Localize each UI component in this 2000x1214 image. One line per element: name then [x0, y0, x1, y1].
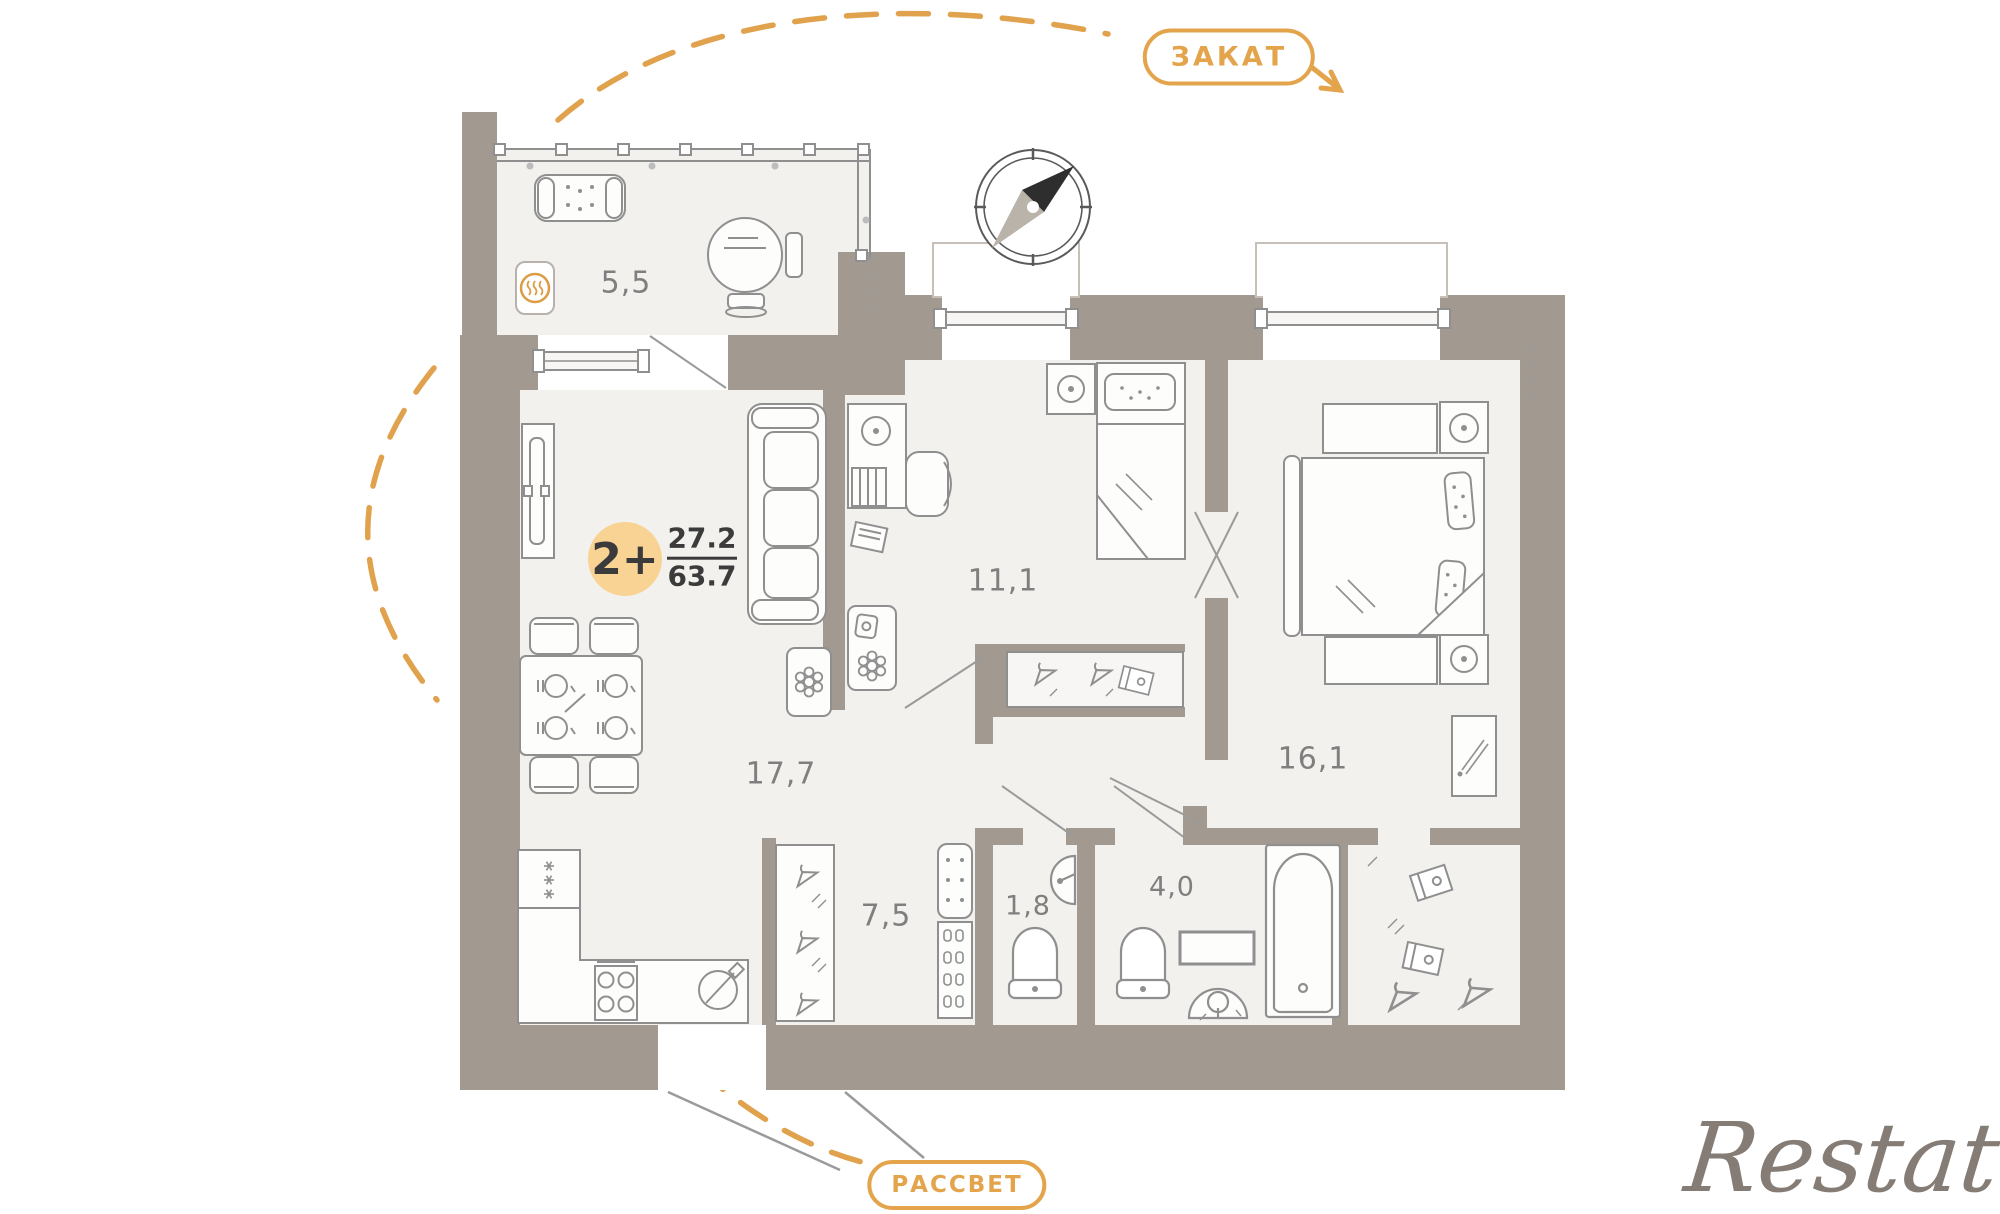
wc-top-wall-a	[993, 828, 1023, 845]
window-bedroom1	[933, 243, 1079, 360]
left-wall	[460, 335, 520, 1090]
bedroom2-area-label: 16,1	[1278, 742, 1349, 777]
bed-shelf-bottom	[1325, 635, 1488, 684]
heater-icon	[516, 262, 554, 314]
desk	[848, 404, 906, 508]
wc-bath-wall	[1077, 828, 1095, 1035]
watermark-logo: Restate	[1680, 1102, 2000, 1214]
sunrise-pill: РАССВЕТ	[867, 1160, 1046, 1210]
closet-top-wall-a	[1348, 828, 1378, 845]
bedroom1-closet-contents	[1007, 652, 1183, 707]
closet-top-wall-b	[1430, 828, 1520, 845]
hall-wc-upper-wall	[975, 644, 993, 744]
floor-plan-drawing	[0, 0, 2000, 1214]
wc-toilet	[1009, 928, 1061, 998]
living-area-value: 27.2	[667, 524, 737, 560]
hall-bench	[938, 844, 972, 918]
wc-left-wall	[975, 828, 993, 1035]
plant-stand	[787, 648, 831, 716]
bed-shelf-top	[1323, 402, 1488, 453]
balcony-door-window	[533, 335, 728, 390]
laptop	[851, 522, 887, 552]
wall-shelf	[1452, 716, 1496, 796]
partition-bedrooms-upper	[1205, 360, 1228, 512]
partition-bedrooms-lower	[1205, 598, 1228, 760]
bedroom1-nightstand	[1047, 364, 1095, 414]
bottom-wall	[460, 1025, 1565, 1090]
sunset-pill: ЗАКАТ	[1143, 29, 1315, 86]
closet-strip-top-wall	[1000, 644, 1185, 652]
bath-top-wall-b	[1185, 828, 1332, 845]
total-area-value: 63.7	[667, 560, 737, 593]
right-wall	[1520, 295, 1565, 1090]
sofa	[748, 404, 826, 624]
floor-plan-page: ЗАКАТ РАССВЕТ 2+ 27.2 63.7 5,5 17,7 11,1…	[0, 0, 2000, 1214]
shoe-rack	[938, 922, 972, 1018]
wc-area-label: 1,8	[1005, 891, 1051, 922]
closet-strip-bottom-wall	[1000, 707, 1185, 717]
washer-shelf	[1180, 932, 1254, 964]
closet-strip-left-wall	[993, 644, 1007, 717]
balcony-area-label: 5,5	[601, 266, 652, 301]
bath-top-wall-a	[1095, 828, 1115, 845]
area-fraction: 27.2 63.7	[667, 524, 737, 593]
bathroom-area-label: 4,0	[1149, 872, 1195, 903]
west-arc	[368, 368, 437, 700]
rooms-badge: 2+	[588, 522, 662, 596]
hallway-area-label: 7,5	[861, 899, 912, 934]
desk-chair	[906, 452, 951, 516]
sunset-arc	[558, 14, 1108, 120]
balcony-bench	[535, 175, 625, 221]
bed-bench	[1284, 456, 1300, 636]
window-bedroom2	[1255, 243, 1450, 360]
coffee-cabinet	[848, 606, 896, 690]
double-bed	[1302, 458, 1484, 635]
tv-cabinet	[522, 424, 554, 558]
hall-wardrobe	[776, 845, 834, 1021]
hallway-left-wall	[762, 838, 776, 1025]
wc-top-wall-b	[1066, 828, 1077, 845]
single-bed	[1097, 363, 1185, 559]
bedroom1-area-label: 11,1	[968, 564, 1039, 599]
bathtub	[1266, 845, 1340, 1017]
bath-toilet	[1117, 928, 1169, 998]
living-area-label: 17,7	[746, 757, 817, 792]
